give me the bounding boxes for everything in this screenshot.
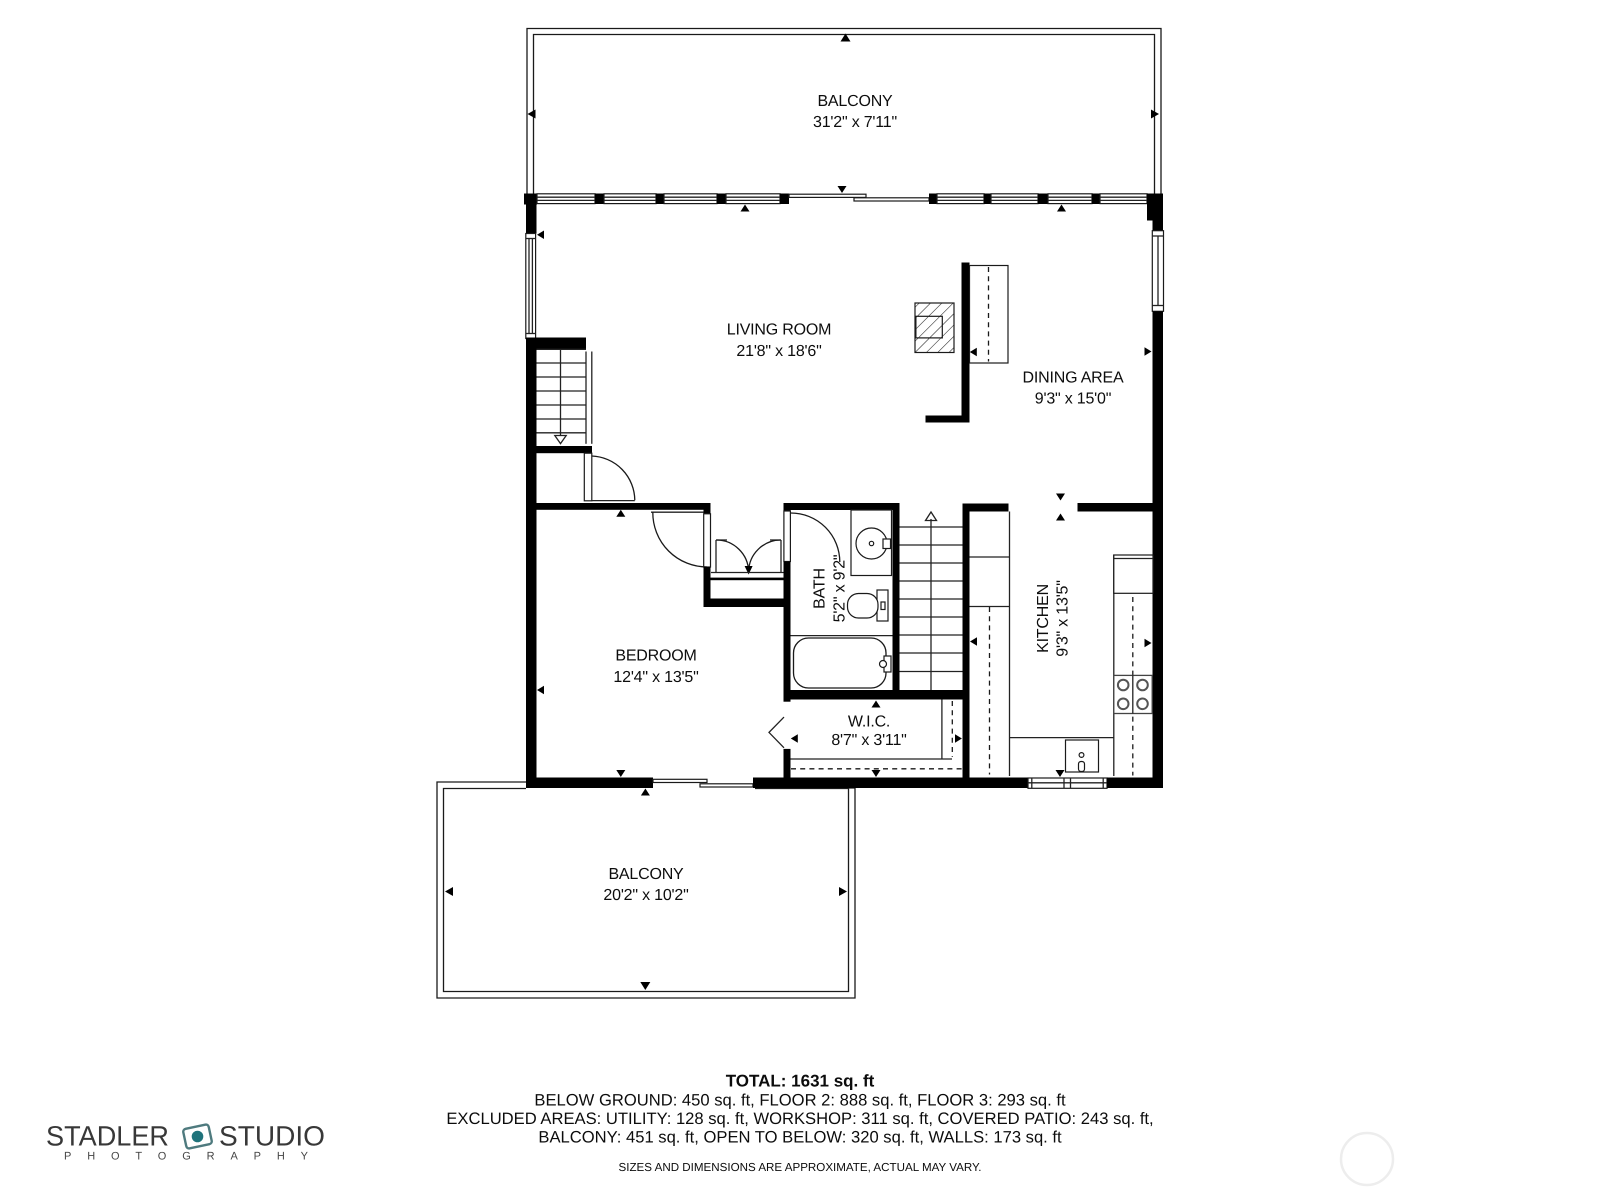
- svg-text:STUDIO: STUDIO: [219, 1121, 325, 1152]
- svg-text:KITCHEN: KITCHEN: [1035, 584, 1052, 653]
- svg-text:12'4" x 13'5": 12'4" x 13'5": [613, 669, 698, 686]
- svg-text:W.I.C.: W.I.C.: [848, 714, 890, 731]
- svg-text:SIZES AND DIMENSIONS ARE APPRO: SIZES AND DIMENSIONS ARE APPROXIMATE, AC…: [619, 1161, 982, 1174]
- svg-text:31'2" x 7'11": 31'2" x 7'11": [813, 114, 897, 131]
- svg-text:9'3" x 15'0": 9'3" x 15'0": [1035, 391, 1111, 408]
- svg-text:DINING AREA: DINING AREA: [1023, 370, 1124, 387]
- svg-text:8'7" x 3'11": 8'7" x 3'11": [831, 732, 906, 749]
- svg-text:TOTAL: 1631 sq. ft: TOTAL: 1631 sq. ft: [726, 1072, 875, 1091]
- svg-text:BELOW GROUND: 450 sq. ft, FLOO: BELOW GROUND: 450 sq. ft, FLOOR 2: 888 s…: [534, 1091, 1066, 1110]
- svg-text:STADLER: STADLER: [46, 1121, 169, 1152]
- svg-text:9'3" x 13'5": 9'3" x 13'5": [1055, 580, 1072, 656]
- svg-text:BEDROOM: BEDROOM: [615, 648, 696, 665]
- svg-text:5'2" x 9'2": 5'2" x 9'2": [832, 555, 849, 623]
- svg-text:BALCONY: BALCONY: [817, 93, 893, 110]
- svg-text:LIVING ROOM: LIVING ROOM: [727, 322, 831, 339]
- svg-text:EXCLUDED AREAS: UTILITY: 128 s: EXCLUDED AREAS: UTILITY: 128 sq. ft, WOR…: [446, 1109, 1153, 1128]
- svg-text:BALCONY: BALCONY: [608, 866, 684, 883]
- svg-text:BATH: BATH: [812, 568, 829, 609]
- svg-text:20'2" x 10'2": 20'2" x 10'2": [603, 887, 688, 904]
- svg-text:21'8" x 18'6": 21'8" x 18'6": [736, 343, 821, 360]
- svg-text:BALCONY: 451 sq. ft, OPEN TO B: BALCONY: 451 sq. ft, OPEN TO BELOW: 320 …: [538, 1128, 1062, 1147]
